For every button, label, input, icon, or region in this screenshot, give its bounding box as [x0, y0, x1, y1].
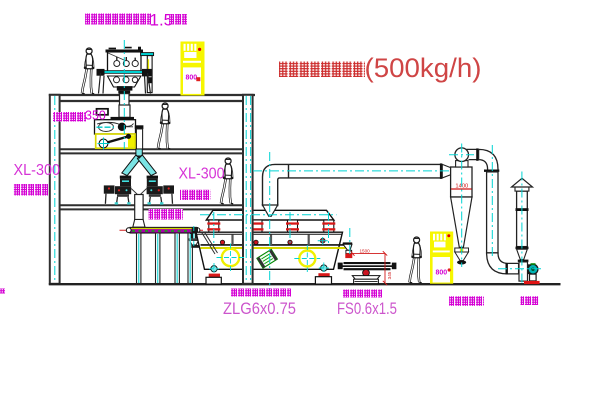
svg-text:800: 800 [186, 74, 198, 81]
svg-text:350: 350 [85, 109, 106, 123]
svg-text:ZLG6x0.75: ZLG6x0.75 [223, 299, 296, 318]
svg-text:XL-300: XL-300 [179, 166, 225, 183]
svg-text:(500kg/h): (500kg/h) [365, 53, 482, 83]
svg-text:345: 345 [387, 271, 392, 279]
svg-text:FS0.6x1.5: FS0.6x1.5 [337, 299, 397, 318]
svg-text:800: 800 [436, 269, 448, 276]
svg-text:1500: 1500 [360, 248, 371, 253]
svg-text:XL-300: XL-300 [14, 162, 61, 179]
